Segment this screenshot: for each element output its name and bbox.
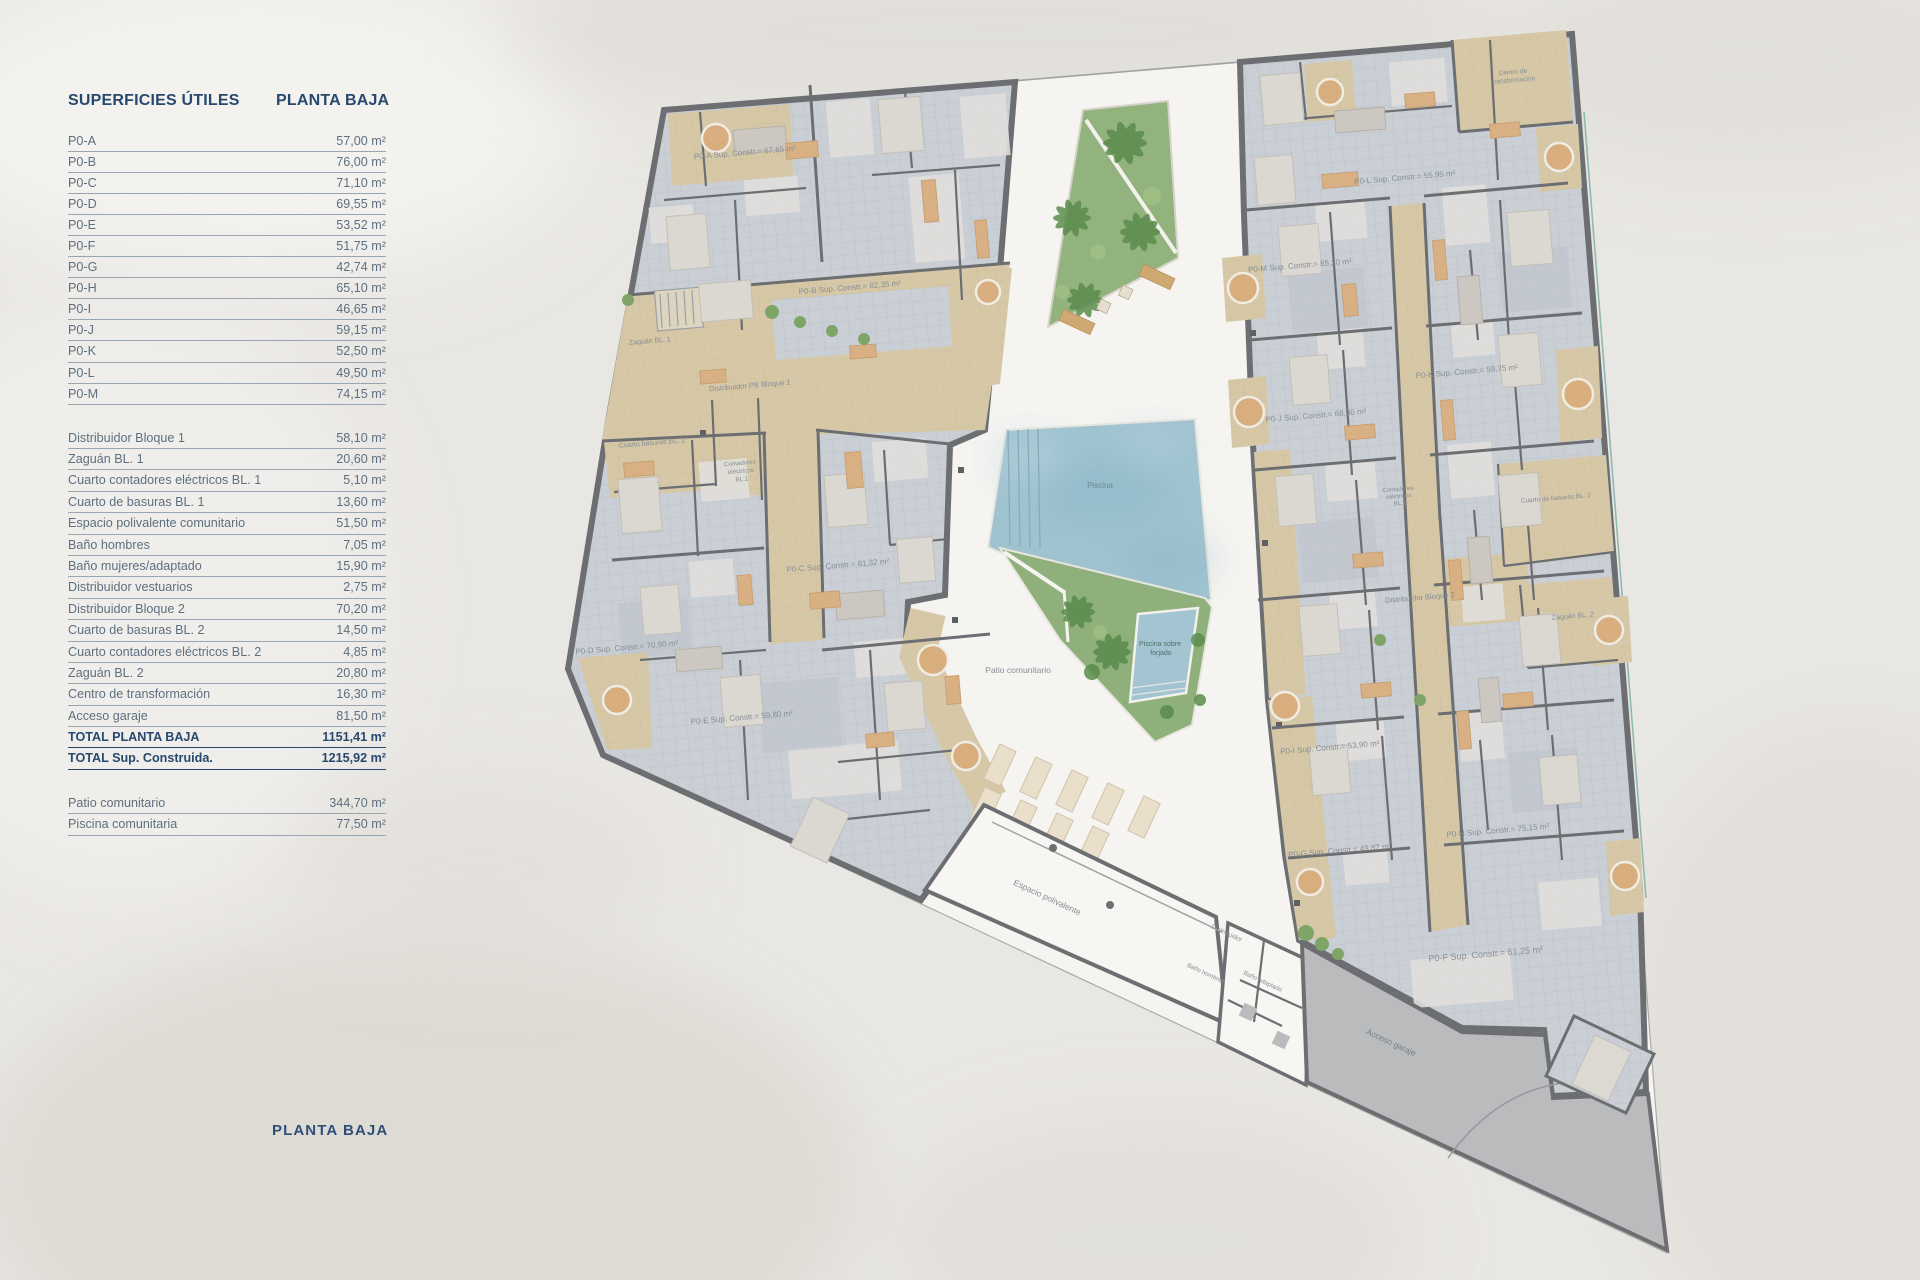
svg-text:forjado: forjado xyxy=(1150,650,1172,657)
svg-text:Piscina sobre: Piscina sobre xyxy=(1139,641,1181,648)
svg-text:BL.2: BL.2 xyxy=(1394,500,1407,507)
svg-text:Piscina: Piscina xyxy=(1087,481,1113,490)
svg-text:Patio comunitario: Patio comunitario xyxy=(985,665,1051,675)
svg-text:BL.1: BL.1 xyxy=(735,475,749,483)
